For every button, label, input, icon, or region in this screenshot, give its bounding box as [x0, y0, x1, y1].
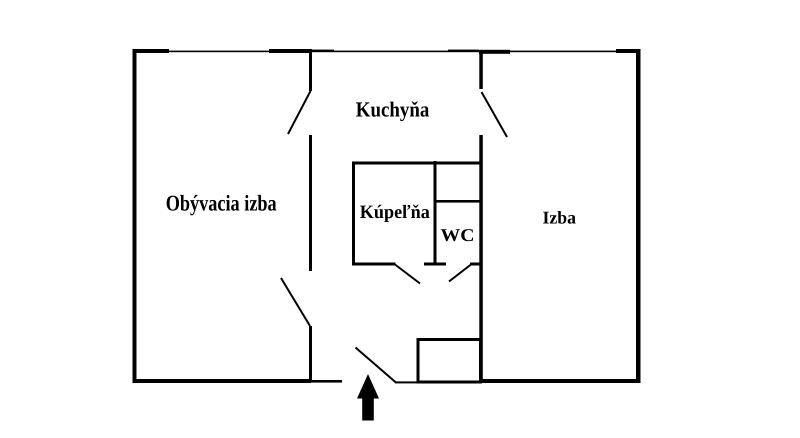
- svg-text:Kuchyňa: Kuchyňa: [356, 98, 430, 122]
- svg-text:Izba: Izba: [543, 208, 577, 228]
- svg-text:Kúpeľňa: Kúpeľňa: [360, 202, 430, 223]
- svg-text:Obývacia izba: Obývacia izba: [166, 191, 277, 216]
- svg-text:WC: WC: [441, 225, 475, 245]
